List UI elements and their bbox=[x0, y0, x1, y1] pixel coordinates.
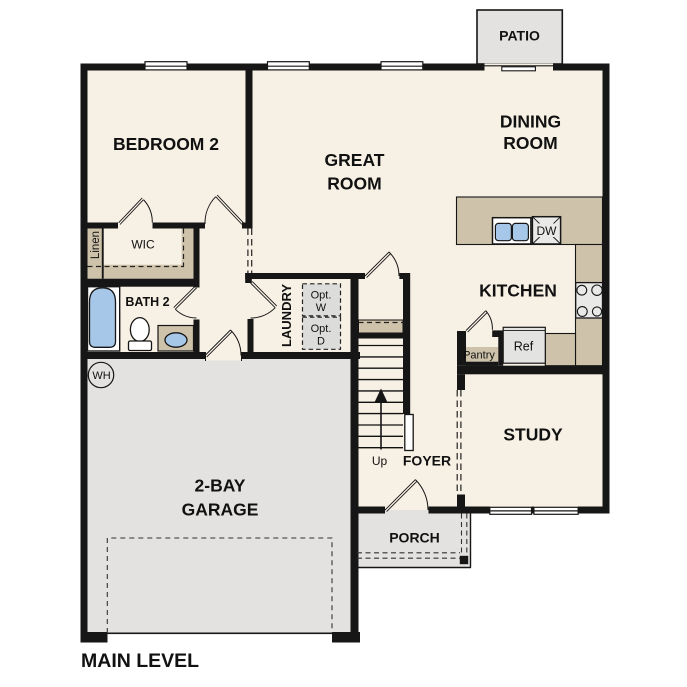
svg-text:DW: DW bbox=[537, 224, 558, 238]
svg-text:WH: WH bbox=[92, 370, 110, 382]
svg-text:GARAGE: GARAGE bbox=[182, 500, 259, 520]
svg-text:DINING: DINING bbox=[500, 112, 561, 132]
svg-text:Opt.: Opt. bbox=[311, 289, 332, 301]
svg-text:2-BAY: 2-BAY bbox=[195, 476, 246, 496]
svg-text:ROOM: ROOM bbox=[503, 133, 557, 153]
svg-text:KITCHEN: KITCHEN bbox=[479, 280, 557, 300]
svg-text:D: D bbox=[317, 336, 325, 348]
svg-text:GREAT: GREAT bbox=[325, 150, 385, 170]
svg-text:WIC: WIC bbox=[131, 238, 155, 252]
svg-text:BATH 2: BATH 2 bbox=[125, 295, 169, 309]
svg-text:Up: Up bbox=[372, 454, 388, 468]
svg-text:STUDY: STUDY bbox=[503, 425, 563, 445]
svg-text:Linen: Linen bbox=[90, 231, 102, 259]
svg-text:BEDROOM 2: BEDROOM 2 bbox=[113, 134, 219, 154]
svg-text:FOYER: FOYER bbox=[403, 452, 451, 468]
svg-text:W: W bbox=[316, 302, 327, 314]
svg-text:ROOM: ROOM bbox=[327, 174, 381, 194]
svg-text:LAUNDRY: LAUNDRY bbox=[279, 284, 294, 347]
svg-text:PORCH: PORCH bbox=[389, 530, 440, 546]
svg-text:Ref: Ref bbox=[514, 340, 534, 354]
svg-text:MAIN LEVEL: MAIN LEVEL bbox=[81, 650, 199, 672]
svg-text:PATIO: PATIO bbox=[499, 27, 540, 43]
svg-text:Pantry: Pantry bbox=[463, 350, 495, 362]
svg-text:Opt.: Opt. bbox=[311, 323, 332, 335]
